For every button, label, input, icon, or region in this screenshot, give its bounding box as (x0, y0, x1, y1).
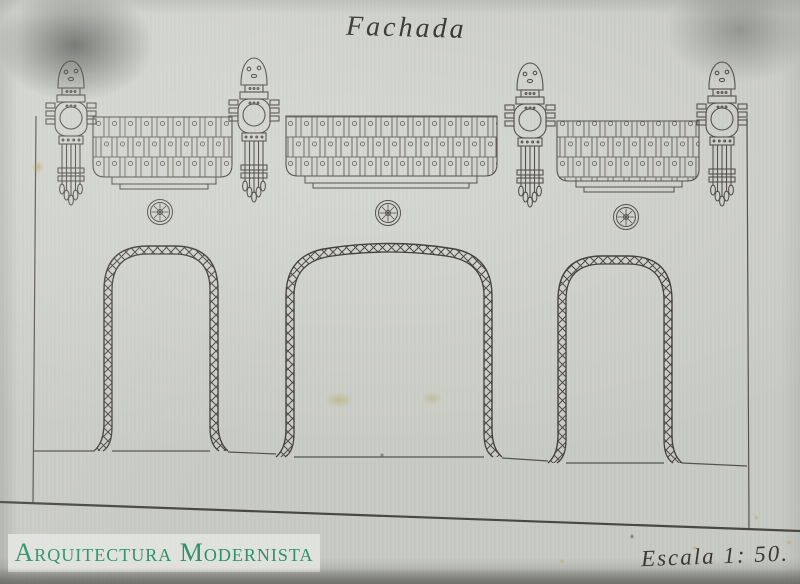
corner-shadow-top-left (0, 0, 180, 120)
bottom-edge-shadow (0, 568, 800, 584)
corner-shadow-top-right (640, 0, 800, 100)
photographed-drawing-sheet: Fachada Escala 1: 50. Arquitectura Moder… (0, 0, 800, 584)
